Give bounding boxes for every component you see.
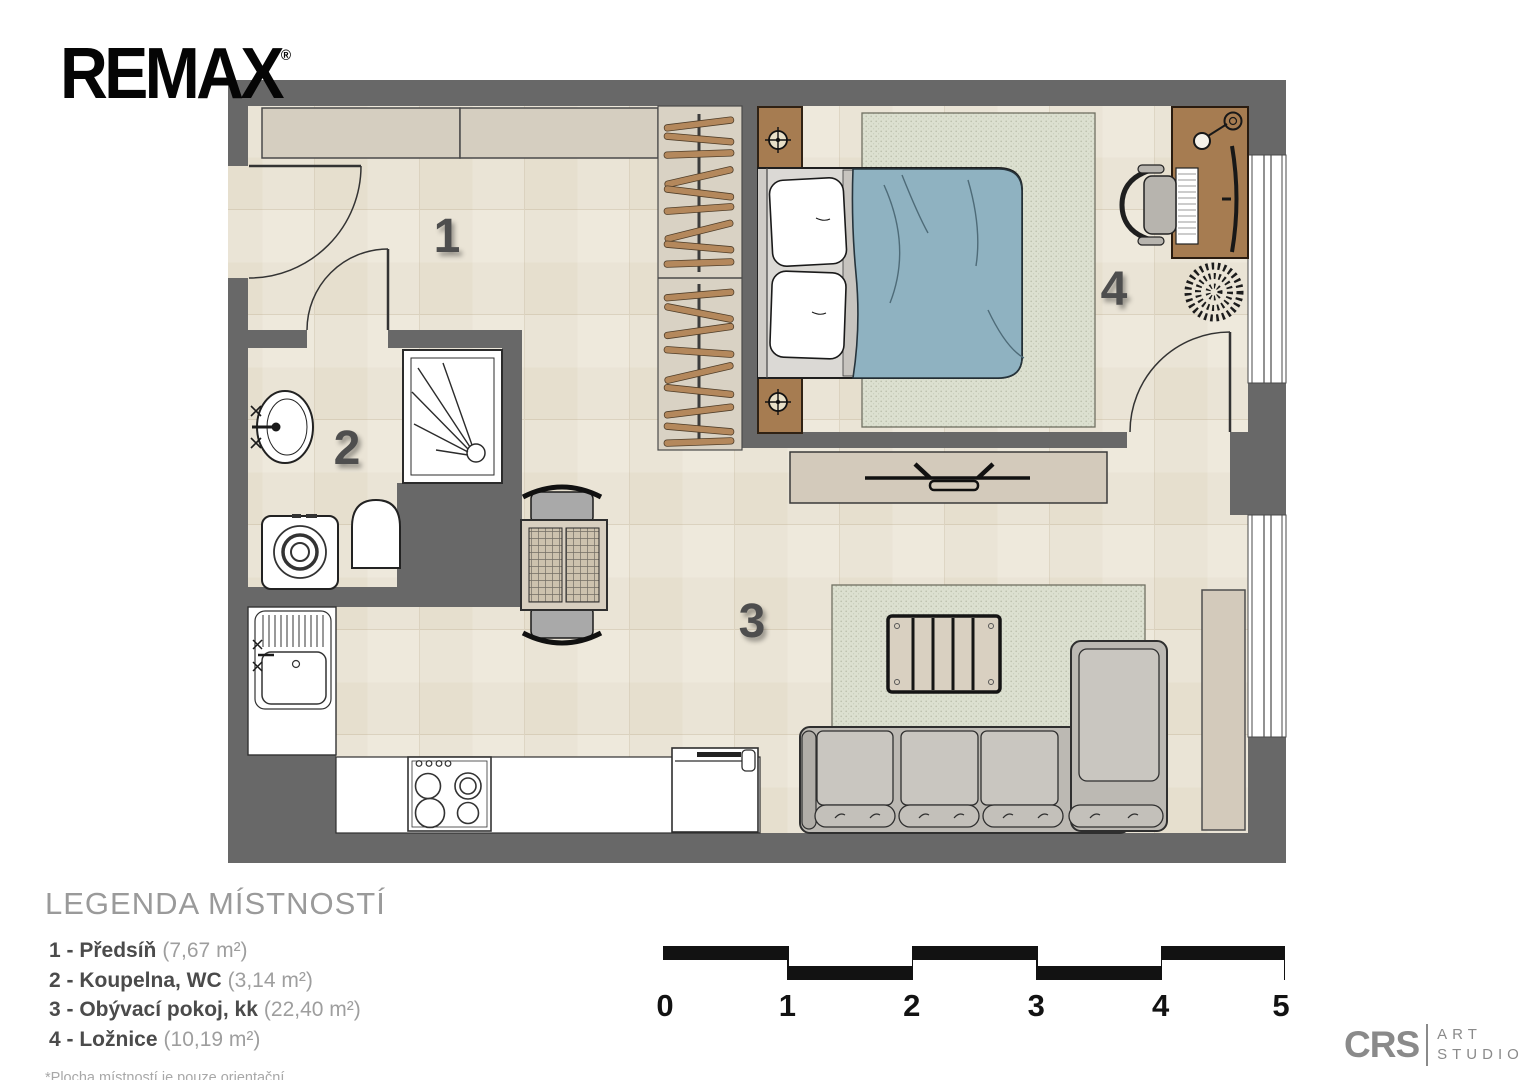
tall-cabinet: [1202, 590, 1245, 830]
washing-machine: [262, 514, 338, 589]
toilet: [352, 500, 400, 568]
nightstand-bottom: [758, 372, 802, 433]
legend-item: 4 - Ložnice(10,19 m²): [45, 1025, 386, 1055]
wardrobe: [658, 106, 742, 450]
pillow-top: [769, 177, 847, 267]
window-bedroom: [1248, 155, 1286, 383]
legend-footnote: *Plocha místností je pouze orientační: [45, 1070, 386, 1080]
legend-title: LEGENDA MÍSTNOSTÍ: [45, 886, 386, 922]
keyboard-icon: [1176, 168, 1198, 244]
scale-segment: [1161, 946, 1285, 960]
dining-table: [521, 520, 607, 610]
legend-item: 2 - Koupelna, WC(3,14 m²): [45, 966, 386, 996]
window-living-room: [1248, 515, 1286, 737]
remax-logo: REMAX®: [60, 38, 291, 110]
shower: [403, 350, 502, 483]
nightstand-top: [758, 107, 802, 168]
studio-logo-abbr: CRS: [1344, 1024, 1419, 1066]
scale-tick: [787, 946, 789, 980]
stove: [408, 757, 491, 831]
legend-item: 3 - Obývací pokoj, kk(22,40 m²): [45, 995, 386, 1025]
studio-logo-line2: STUDIO: [1437, 1045, 1524, 1065]
dining-chair-top: [523, 487, 601, 524]
pillow-bottom: [770, 271, 847, 360]
legend: LEGENDA MÍSTNOSTÍ 1 - Předsíň(7,67 m²) 2…: [45, 886, 386, 1080]
scale-tick: [1284, 946, 1286, 980]
scale-label-3: 3: [1028, 988, 1045, 1024]
kitchen-sink-unit: [248, 607, 336, 755]
scale-label-5: 5: [1272, 988, 1289, 1024]
scale-label-4: 4: [1152, 988, 1169, 1024]
legend-item: 1 - Předsíň(7,67 m²): [45, 936, 386, 966]
scale-segment: [1036, 966, 1160, 980]
desk: [1172, 107, 1248, 258]
double-bed: [758, 168, 1024, 378]
room-label-3: 3: [739, 598, 766, 646]
floorplan-page: 1 2 3 4 REMAX® LEGENDA MÍSTNOSTÍ 1 - Pře…: [0, 0, 1529, 1080]
registered-trademark: ®: [281, 47, 291, 64]
room-label-2: 2: [334, 425, 361, 473]
scale-segment: [663, 946, 787, 960]
desk-lamp-icon: [1194, 133, 1210, 149]
scale-label-1: 1: [779, 988, 796, 1024]
fridge: [672, 748, 758, 832]
studio-logo: CRS ART STUDIO: [1344, 1024, 1524, 1066]
coffee-table: [888, 616, 1000, 692]
scale-segment: [912, 946, 1036, 960]
remax-logo-text: REMAX: [60, 34, 281, 114]
studio-logo-line1: ART: [1437, 1025, 1524, 1045]
scale-tick: [1036, 946, 1038, 980]
room-label-1: 1: [434, 213, 461, 261]
scale-segment: [787, 966, 911, 980]
dining-chair-bottom: [523, 606, 601, 643]
scale-label-2: 2: [903, 988, 920, 1024]
scale-bar: 0 1 2 3 4 5: [663, 946, 1285, 1030]
plant-icon: [1188, 266, 1240, 318]
scale-tick: [1161, 946, 1163, 980]
hallway-cabinet: [262, 108, 658, 158]
scale-label-0: 0: [656, 988, 673, 1024]
studio-logo-divider: [1426, 1024, 1428, 1066]
scale-tick: [912, 946, 914, 980]
room-label-4: 4: [1101, 266, 1128, 314]
